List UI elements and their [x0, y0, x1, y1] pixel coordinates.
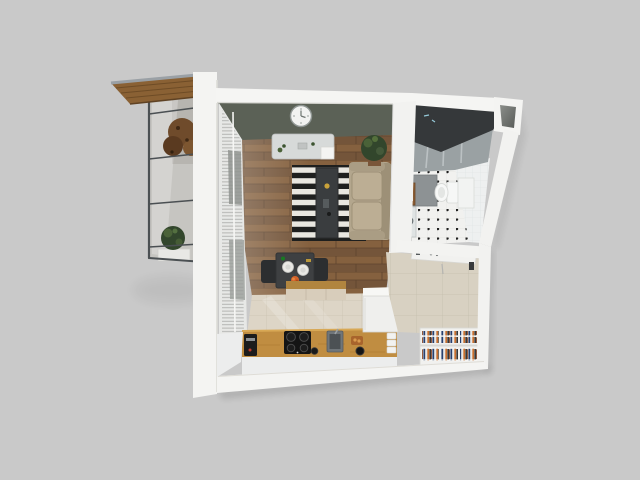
- dining-chair-left: [261, 260, 278, 283]
- ceiling-lamp-clock: [291, 106, 312, 127]
- window-niche: [500, 105, 516, 128]
- wine-bottle: [356, 347, 364, 355]
- cutting-board: [351, 336, 363, 345]
- peninsula-cabinet: [286, 281, 346, 300]
- kitchen-sink: [327, 329, 343, 352]
- floorplan-render: [0, 0, 640, 480]
- pepper-grinder: [311, 348, 318, 355]
- boiler-cabinet: [458, 178, 474, 208]
- shoe-rack: [420, 328, 480, 365]
- canisters: [387, 333, 396, 353]
- induction-hob: [284, 331, 311, 354]
- sofa: [349, 162, 392, 240]
- coffee-table: [316, 168, 338, 238]
- wall-console: [272, 134, 334, 159]
- wall-left-column: [193, 72, 217, 398]
- intercom: [469, 262, 474, 270]
- bath-mat: [413, 175, 437, 206]
- coffee-machine: [244, 334, 257, 356]
